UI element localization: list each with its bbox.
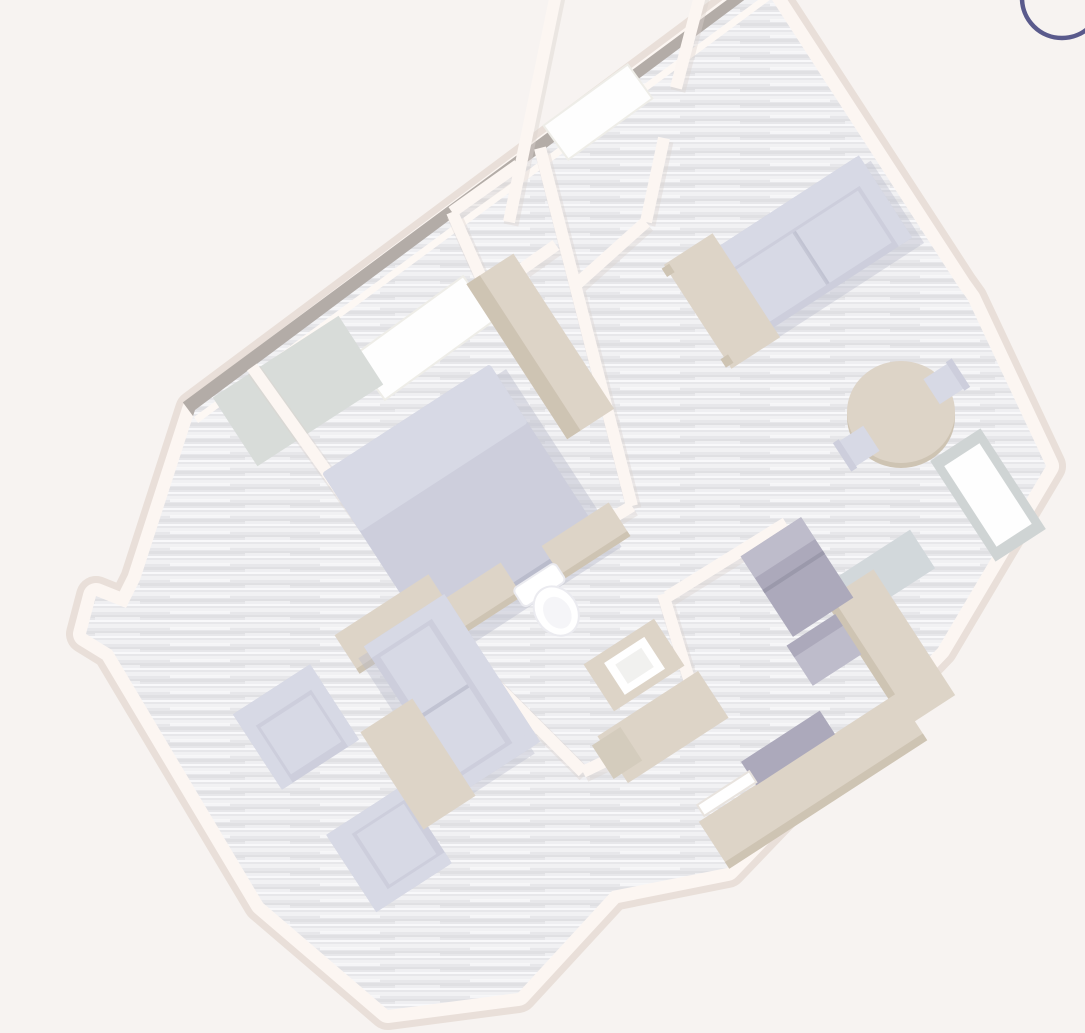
floor-plan-canvas[interactable] (0, 0, 1085, 1033)
light-wash-overlay (0, 0, 1085, 1033)
floor-plan-3d-view[interactable] (0, 0, 1085, 1033)
